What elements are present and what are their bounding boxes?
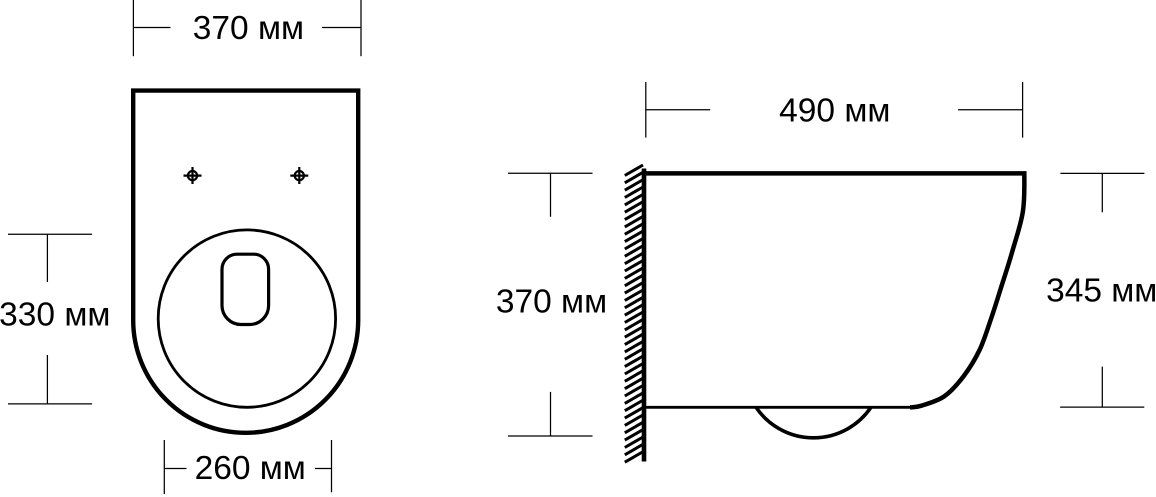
- svg-text:345 мм: 345 мм: [1046, 273, 1156, 310]
- svg-text:490 мм: 490 мм: [779, 93, 890, 130]
- svg-text:330 мм: 330 мм: [0, 297, 110, 334]
- svg-text:370 мм: 370 мм: [496, 284, 607, 321]
- svg-text:260 мм: 260 мм: [195, 450, 306, 487]
- svg-text:370 мм: 370 мм: [193, 10, 304, 47]
